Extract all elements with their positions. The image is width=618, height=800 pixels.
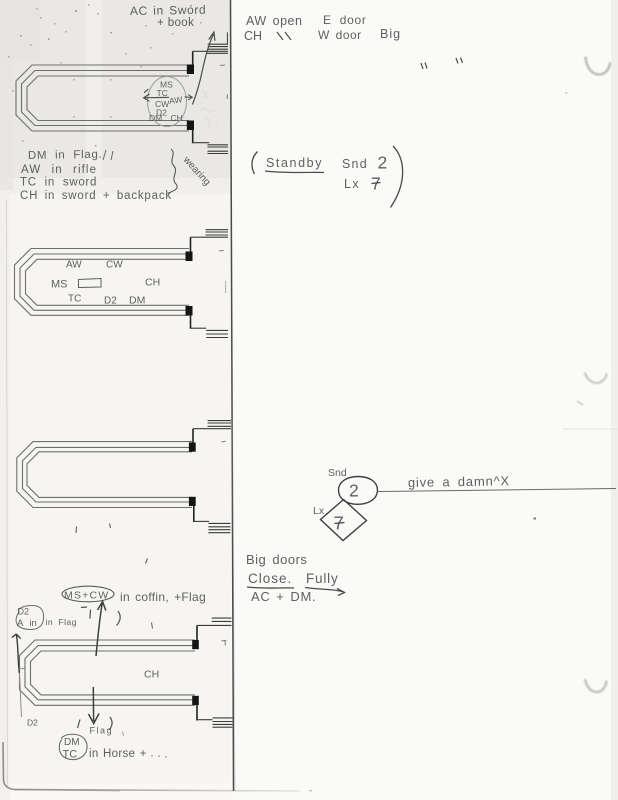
svg-text:AC in Sword: AC in Sword: [130, 3, 207, 18]
svg-text:TC in sword: TC in sword: [20, 177, 97, 189]
svg-text:CH: CH: [145, 277, 160, 289]
svg-text:Flag: Flag: [90, 726, 114, 736]
svg-text:2: 2: [378, 153, 388, 173]
svg-text:MS: MS: [51, 279, 68, 291]
svg-text:Standby: Standby: [266, 156, 323, 170]
svg-text:CH: CH: [171, 113, 183, 123]
svg-text:E door: E door: [323, 13, 367, 27]
svg-text:in coffin, +Flag: in coffin, +Flag: [120, 590, 206, 604]
svg-text:D2: D2: [27, 718, 38, 728]
svg-text:CW: CW: [106, 260, 123, 271]
svg-text:CH in sword + backpack: CH in sword + backpack: [20, 190, 172, 202]
svg-text:Snd: Snd: [328, 467, 347, 479]
svg-text:+ book: + book: [157, 17, 194, 29]
svg-text:AW open: AW open: [246, 14, 302, 28]
svg-text:Fully: Fully: [306, 571, 339, 586]
svg-text:DM in Flag.: DM in Flag.: [28, 149, 103, 162]
svg-text:Big: Big: [380, 27, 401, 41]
svg-text:Big doors: Big doors: [246, 552, 307, 567]
svg-text:CH: CH: [244, 29, 262, 43]
svg-text:D2: D2: [18, 607, 30, 617]
svg-text:CH: CH: [144, 669, 159, 681]
svg-text:TC: TC: [157, 88, 168, 98]
svg-text:Lx: Lx: [313, 505, 325, 517]
svg-text:DM: DM: [129, 295, 145, 307]
svg-text:TC: TC: [63, 749, 78, 761]
svg-text:2: 2: [349, 481, 359, 501]
svg-text:DM: DM: [64, 737, 80, 748]
svg-text:AW in rifle: AW in rifle: [21, 164, 97, 176]
svg-text:W door: W door: [318, 28, 362, 42]
svg-text:in Horse +: in Horse +: [89, 748, 147, 760]
svg-text:AW: AW: [66, 260, 82, 271]
svg-text:Lx: Lx: [344, 177, 360, 191]
svg-text:MS+CW: MS+CW: [64, 590, 109, 602]
svg-text:AW: AW: [168, 94, 183, 106]
svg-text:DM: DM: [149, 113, 162, 123]
svg-text:Close.: Close.: [248, 571, 292, 586]
svg-text:give a damn^X: give a damn^X: [408, 473, 510, 490]
svg-text:in Flag: in Flag: [46, 617, 78, 627]
svg-text:AC + DM.: AC + DM.: [251, 589, 316, 604]
svg-text:D2: D2: [104, 296, 117, 307]
svg-text:Snd: Snd: [342, 157, 368, 171]
svg-text:TC: TC: [68, 294, 81, 305]
svg-text:A in: A in: [17, 618, 37, 629]
